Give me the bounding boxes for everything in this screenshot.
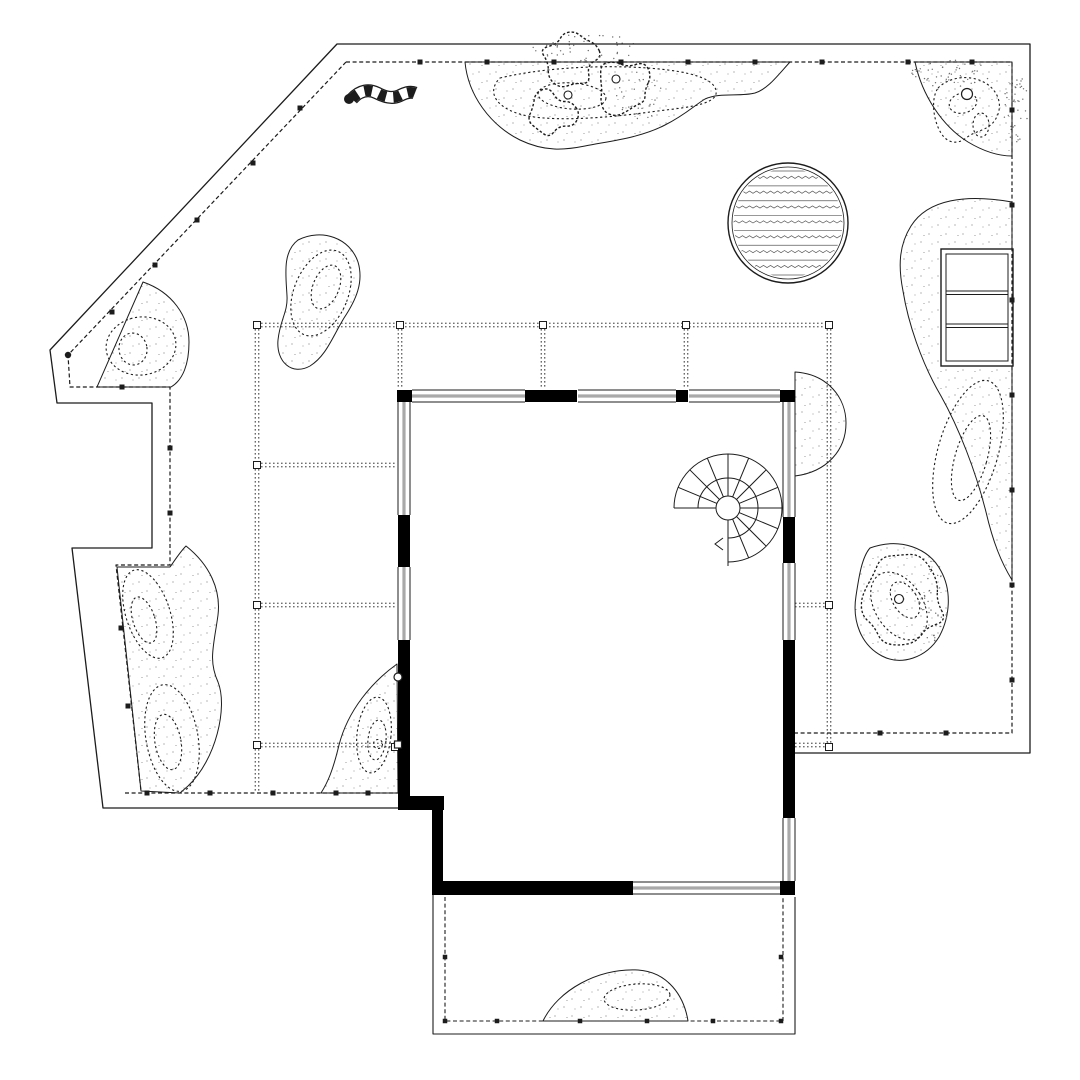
building — [394, 390, 795, 895]
site-plan-drawing — [0, 0, 1080, 1080]
site-plan-page — [0, 0, 1080, 1080]
courtyard — [433, 895, 795, 1034]
pond — [728, 163, 848, 283]
planter-box — [941, 249, 1013, 366]
